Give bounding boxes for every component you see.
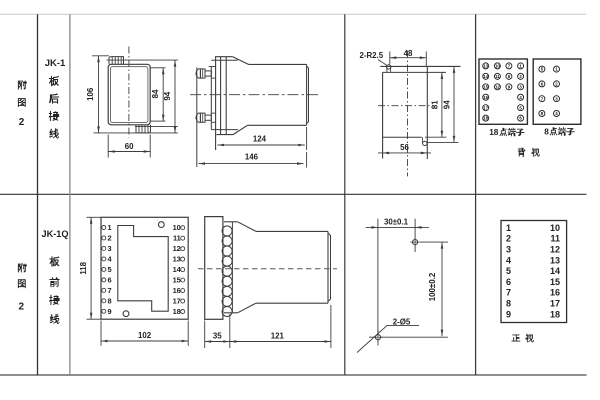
svg-text:15: 15 xyxy=(483,84,488,89)
svg-text:8: 8 xyxy=(506,299,511,309)
svg-text:6: 6 xyxy=(506,277,511,287)
svg-text:2: 2 xyxy=(19,117,25,128)
svg-text:1: 1 xyxy=(506,223,511,233)
svg-text:18: 18 xyxy=(489,127,499,137)
svg-text:16: 16 xyxy=(173,286,181,295)
svg-text:121: 121 xyxy=(271,332,285,341)
svg-text:2-R2.5: 2-R2.5 xyxy=(359,51,383,60)
svg-text:16: 16 xyxy=(550,288,560,298)
svg-text:13: 13 xyxy=(483,63,488,68)
svg-text:14: 14 xyxy=(550,266,560,276)
svg-text:10: 10 xyxy=(550,223,560,233)
svg-text:JK-1: JK-1 xyxy=(45,58,66,69)
svg-text:94: 94 xyxy=(163,91,172,100)
svg-text:17: 17 xyxy=(173,296,181,305)
svg-text:7: 7 xyxy=(108,286,112,295)
svg-text:15: 15 xyxy=(550,277,560,287)
svg-text:2: 2 xyxy=(19,302,25,313)
svg-text:13: 13 xyxy=(550,255,560,265)
svg-text:60: 60 xyxy=(125,142,134,151)
svg-text:9: 9 xyxy=(506,309,511,319)
svg-text:6: 6 xyxy=(108,275,112,284)
svg-text:12: 12 xyxy=(550,245,560,255)
svg-text:100±0.2: 100±0.2 xyxy=(428,272,437,301)
svg-text:48: 48 xyxy=(404,49,413,58)
svg-text:18: 18 xyxy=(550,309,560,319)
svg-text:94: 94 xyxy=(443,100,452,109)
svg-text:3: 3 xyxy=(506,245,511,255)
svg-text:124: 124 xyxy=(253,135,267,144)
svg-text:2: 2 xyxy=(506,234,511,244)
svg-text:11: 11 xyxy=(495,74,500,79)
svg-text:1: 1 xyxy=(108,223,112,232)
svg-text:4: 4 xyxy=(506,255,511,265)
svg-text:84: 84 xyxy=(151,89,160,98)
svg-text:13: 13 xyxy=(173,255,181,264)
svg-text:JK-1Q: JK-1Q xyxy=(41,229,68,239)
svg-text:56: 56 xyxy=(400,143,409,152)
svg-text:16: 16 xyxy=(483,95,488,100)
svg-text:3: 3 xyxy=(108,244,112,253)
svg-text:146: 146 xyxy=(245,152,259,161)
svg-text:118: 118 xyxy=(79,261,88,274)
svg-text:12: 12 xyxy=(495,84,500,89)
svg-text:18: 18 xyxy=(173,307,181,316)
svg-text:2-Ø5: 2-Ø5 xyxy=(393,317,411,326)
svg-text:14: 14 xyxy=(483,74,488,79)
svg-text:11: 11 xyxy=(173,234,181,243)
svg-text:10: 10 xyxy=(495,63,500,68)
svg-text:30±0.1: 30±0.1 xyxy=(384,217,409,226)
svg-text:2: 2 xyxy=(108,234,112,243)
svg-text:8: 8 xyxy=(108,296,112,305)
svg-text:11: 11 xyxy=(550,234,560,244)
svg-text:10: 10 xyxy=(173,223,181,232)
svg-text:5: 5 xyxy=(506,266,511,276)
svg-text:5: 5 xyxy=(108,265,112,274)
svg-text:12: 12 xyxy=(173,244,181,253)
svg-text:17: 17 xyxy=(550,299,560,309)
svg-text:15: 15 xyxy=(173,275,181,284)
svg-text:102: 102 xyxy=(138,331,152,340)
svg-text:8: 8 xyxy=(544,126,549,136)
svg-text:106: 106 xyxy=(86,87,95,101)
svg-text:9: 9 xyxy=(108,307,112,316)
svg-text:18: 18 xyxy=(483,116,488,121)
svg-text:81: 81 xyxy=(431,100,440,109)
svg-text:7: 7 xyxy=(506,288,511,298)
svg-text:17: 17 xyxy=(483,105,488,110)
svg-text:35: 35 xyxy=(213,332,222,341)
